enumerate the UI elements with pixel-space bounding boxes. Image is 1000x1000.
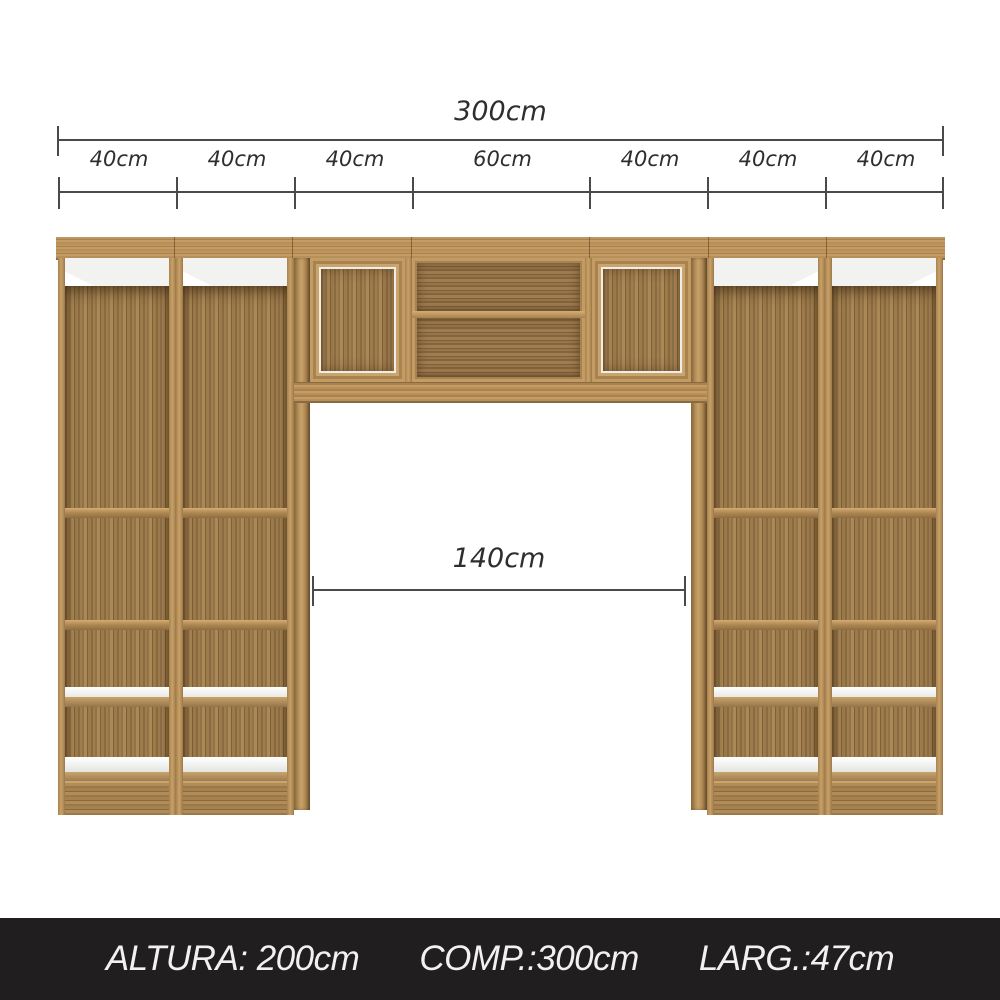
bridge-partition — [585, 258, 592, 400]
wardrobe-tower — [825, 258, 943, 815]
bottom-shelf — [832, 757, 936, 783]
tower-back-panel — [714, 286, 818, 783]
dimension-segment: 40cm — [825, 177, 945, 209]
bottom-shelf — [714, 757, 818, 783]
segment-width-label: 40cm — [296, 147, 414, 171]
tower-back-panel — [65, 286, 169, 783]
tower-ceiling-panel — [65, 258, 169, 286]
wood-shelf — [714, 620, 818, 630]
tower-ceiling-panel — [832, 258, 936, 286]
dimension-segment: 40cm — [176, 177, 296, 209]
tower-back-panel — [183, 286, 287, 783]
plinth — [183, 781, 287, 815]
total-width-dimension-line — [58, 139, 943, 141]
wood-shelf — [832, 620, 936, 630]
segment-width-label: 40cm — [60, 147, 178, 171]
cornice-segment — [175, 237, 294, 258]
cornice-segment — [590, 237, 709, 258]
spec-height: ALTURA: 200cm — [106, 939, 360, 979]
white-shelf — [832, 687, 936, 707]
wood-shelf — [832, 508, 936, 518]
plinth — [714, 781, 818, 815]
cubby-compartment — [417, 318, 580, 377]
cornice-segment — [827, 237, 945, 258]
bridge-cubby-center — [412, 258, 585, 382]
bottom-shelf — [183, 757, 287, 783]
cornice-segment — [293, 237, 412, 258]
tower-side-post — [818, 258, 825, 815]
bridge-cubby-left — [310, 258, 405, 382]
tower-side-post — [287, 258, 294, 815]
tower-side-post — [707, 258, 714, 815]
segment-width-label: 40cm — [709, 147, 827, 171]
cubby-compartment — [417, 263, 580, 311]
wood-shelf — [65, 508, 169, 518]
tower-ceiling-panel — [714, 258, 818, 286]
segment-width-label: 40cm — [591, 147, 709, 171]
dimension-segment: 40cm — [589, 177, 709, 209]
segment-width-label: 40cm — [827, 147, 945, 171]
dimension-tick — [684, 576, 686, 606]
cubby-middle-shelf — [412, 311, 585, 318]
dimension-tick — [57, 126, 59, 156]
tower-side-post — [58, 258, 65, 815]
white-shelf — [65, 687, 169, 707]
cornice-segment — [56, 237, 175, 258]
wood-shelf — [183, 508, 287, 518]
wardrobe-tower — [176, 258, 294, 815]
opening-dimension-line — [313, 589, 685, 591]
tower-back-panel — [832, 286, 936, 783]
dimension-segment: 60cm — [412, 177, 591, 209]
white-shelf — [714, 687, 818, 707]
tower-side-post — [936, 258, 943, 815]
segment-width-label: 60cm — [414, 147, 591, 171]
wood-shelf — [714, 508, 818, 518]
tower-side-post — [825, 258, 832, 815]
wardrobe-tower — [707, 258, 825, 815]
opening-width-label: 140cm — [313, 543, 685, 574]
wood-shelf — [183, 620, 287, 630]
tower-side-post — [169, 258, 176, 815]
wardrobe-tower — [58, 258, 176, 815]
bridge-cubby-right — [592, 258, 691, 382]
segment-dimension-line: 40cm 40cm 40cm 60cm 40cm 40cm 40cm — [58, 191, 943, 193]
dimension-tick — [942, 177, 944, 209]
plinth — [832, 781, 936, 815]
bridge-bottom-panel — [294, 382, 707, 403]
cornice — [56, 237, 945, 260]
dimension-segment: 40cm — [294, 177, 414, 209]
tower-side-post — [176, 258, 183, 815]
specs-footer-bar: ALTURA: 200cm COMP.:300cm LARG.:47cm — [0, 918, 1000, 1000]
bridge-partition — [405, 258, 412, 400]
dimension-segment: 40cm — [707, 177, 827, 209]
plinth — [65, 781, 169, 815]
spec-length: COMP.:300cm — [419, 939, 639, 979]
total-width-label: 300cm — [58, 96, 943, 127]
opening-left-post — [294, 258, 310, 810]
spec-depth: LARG.:47cm — [699, 939, 894, 979]
bottom-shelf — [65, 757, 169, 783]
wood-shelf — [65, 620, 169, 630]
tower-ceiling-panel — [183, 258, 287, 286]
dimension-tick — [312, 576, 314, 606]
product-diagram: 300cm 40cm 40cm 40cm 60cm 40cm 40cm 40cm — [0, 0, 1000, 1000]
opening-right-post — [691, 258, 707, 810]
segment-width-label: 40cm — [178, 147, 296, 171]
cornice-segment — [709, 237, 828, 258]
white-shelf — [183, 687, 287, 707]
cornice-segment — [412, 237, 590, 258]
dimension-segment: 40cm — [58, 177, 178, 209]
